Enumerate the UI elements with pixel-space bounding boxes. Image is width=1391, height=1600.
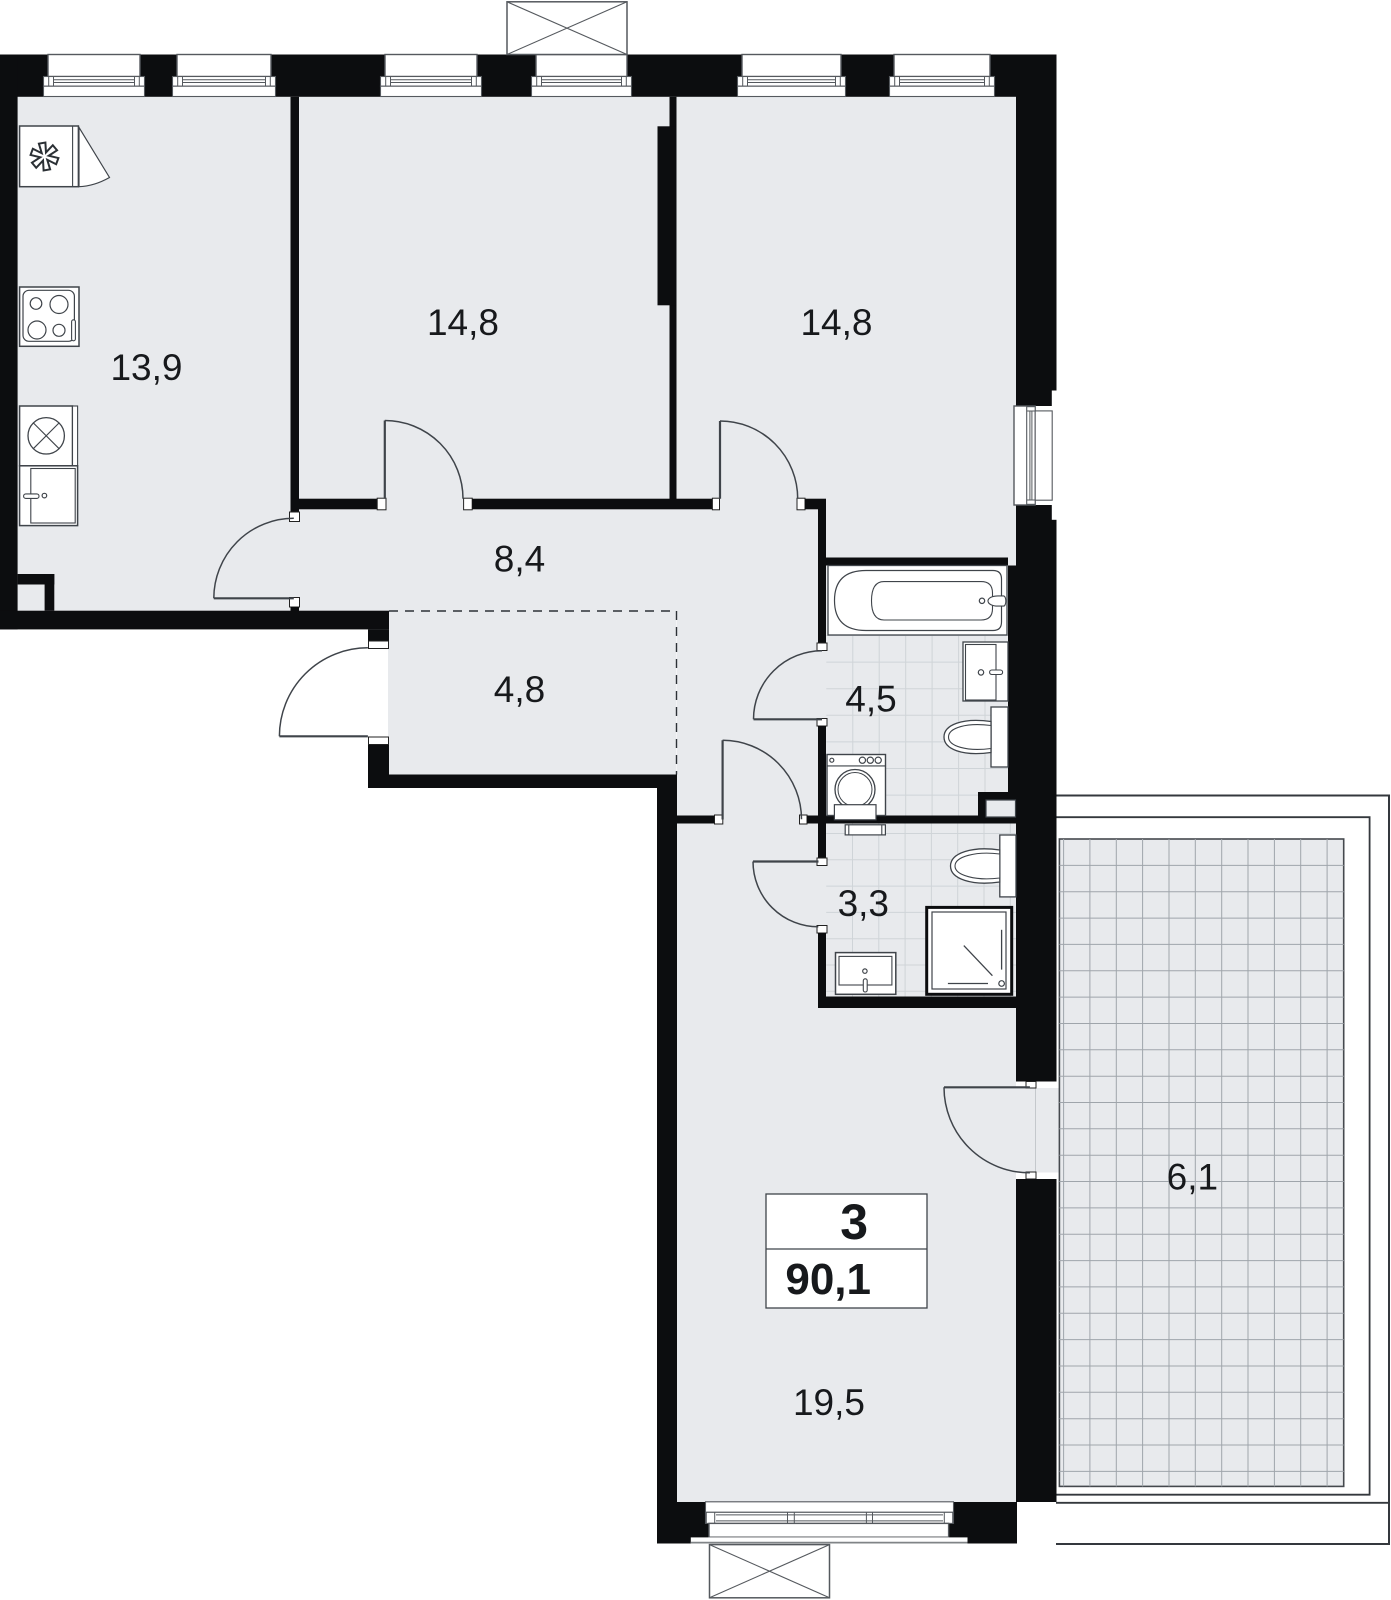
svg-text:14,8: 14,8 [800, 302, 872, 343]
svg-text:13,9: 13,9 [110, 347, 182, 388]
svg-text:8,4: 8,4 [494, 538, 545, 579]
svg-text:90,1: 90,1 [785, 1255, 871, 1304]
svg-text:3: 3 [840, 1194, 868, 1250]
svg-text:19,5: 19,5 [793, 1382, 865, 1423]
svg-text:4,8: 4,8 [494, 669, 545, 710]
svg-text:4,5: 4,5 [845, 679, 896, 720]
svg-text:3,3: 3,3 [838, 883, 889, 924]
svg-text:6,1: 6,1 [1167, 1157, 1218, 1198]
svg-text:14,8: 14,8 [427, 302, 499, 343]
